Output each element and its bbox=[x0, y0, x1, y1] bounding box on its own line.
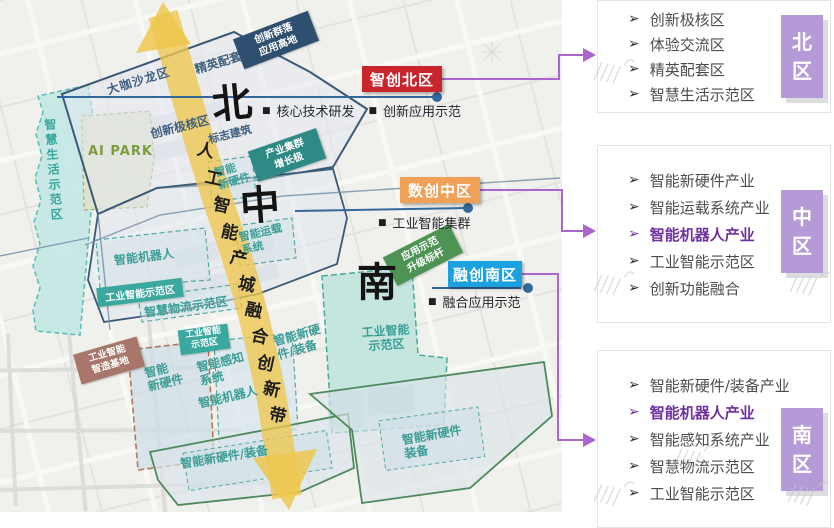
planning-map-infographic: 大咖沙龙区 精英配套区 北 创新极核区 标志建筑 创新群落 应用高地 产业集群 … bbox=[0, 0, 834, 512]
belt-char: 合 bbox=[249, 327, 269, 347]
square-bullet-icon: ■ bbox=[378, 218, 387, 228]
callout-north-district: 智创北区 bbox=[362, 66, 442, 92]
district-char-south: 南 bbox=[357, 263, 397, 303]
square-bullet-icon: ■ bbox=[262, 106, 271, 116]
panel-item-label: 体验交流区 bbox=[650, 34, 725, 55]
belt-char: 城 bbox=[236, 275, 256, 295]
arrow-bullet-icon: ➢ bbox=[628, 36, 640, 52]
zone-label-ai-park: AI PARK bbox=[88, 144, 153, 160]
connector-arrowheads bbox=[583, 48, 596, 447]
district-char-north: 北 bbox=[210, 82, 254, 126]
point-item: ■ 核心技术研发 bbox=[262, 101, 355, 120]
badge-south-district: 南区 bbox=[781, 408, 823, 491]
arrow-bullet-icon: ➢ bbox=[628, 226, 640, 242]
belt-char: 带 bbox=[267, 406, 287, 426]
arrow-bullet-icon: ➢ bbox=[628, 199, 640, 215]
district-char-central: 中 bbox=[239, 185, 282, 228]
panel-item-label: 智能运载系统产业 bbox=[650, 197, 770, 218]
callout-south-district: 融创南区 bbox=[448, 261, 522, 287]
belt-char: 智 bbox=[211, 196, 231, 216]
panel-item-label: 创新功能融合 bbox=[650, 278, 740, 299]
panel-item-label: 智能机器人产业 bbox=[650, 402, 755, 423]
belt-char: 能 bbox=[219, 223, 239, 243]
square-bullet-icon: ■ bbox=[369, 106, 378, 116]
arrow-bullet-icon: ➢ bbox=[628, 485, 640, 501]
callout-south-points: ■ 融合应用示范 bbox=[428, 292, 521, 311]
panel-item-label: 智慧物流示范区 bbox=[650, 456, 755, 477]
panel-item-label: 智能机器人产业 bbox=[650, 224, 755, 245]
belt-char: 融 bbox=[243, 301, 263, 321]
badge-label: 中区 bbox=[790, 203, 814, 261]
point-label: 核心技术研发 bbox=[277, 101, 355, 120]
belt-char: 新 bbox=[261, 380, 281, 400]
point-label: 创新应用示范 bbox=[383, 101, 461, 120]
panel-item-label: 工业智能示范区 bbox=[650, 483, 755, 504]
square-bullet-icon: ■ bbox=[428, 297, 437, 307]
arrow-bullet-icon: ➢ bbox=[628, 253, 640, 269]
point-label: 融合应用示范 bbox=[443, 292, 521, 311]
panel-item: ➢ 智能新硬件/装备产业 bbox=[598, 372, 830, 399]
zone-label-industrial-demo-south: 工业智能 示范区 bbox=[361, 322, 411, 354]
badge-north-district: 北区 bbox=[781, 15, 823, 98]
badge-label: 南区 bbox=[790, 421, 814, 479]
point-label: 工业智能集群 bbox=[393, 213, 471, 232]
asterisk-mark bbox=[482, 42, 502, 62]
badge-central-district: 中区 bbox=[781, 190, 823, 273]
arrow-bullet-icon: ➢ bbox=[628, 86, 640, 102]
arrow-bullet-icon: ➢ bbox=[628, 458, 640, 474]
panel-item: ➢ 创新功能融合 bbox=[598, 275, 830, 302]
arrow-bullet-icon: ➢ bbox=[628, 404, 640, 420]
belt-char: 产 bbox=[228, 249, 248, 269]
panel-item-label: 精英配套区 bbox=[650, 59, 725, 80]
arrow-bullet-icon: ➢ bbox=[628, 431, 640, 447]
arrow-bullet-icon: ➢ bbox=[628, 280, 640, 296]
panel-item-label: 智能新硬件产业 bbox=[650, 170, 755, 191]
panel-item-label: 工业智能示范区 bbox=[650, 251, 755, 272]
panel-item-label: 智能新硬件/装备产业 bbox=[650, 375, 790, 396]
panel-item-label: 智慧生活示范区 bbox=[650, 84, 755, 105]
point-item: ■ 融合应用示范 bbox=[428, 292, 521, 311]
arrow-bullet-icon: ➢ bbox=[628, 377, 640, 393]
callout-north-points: ■ 核心技术研发 ■ 创新应用示范 bbox=[262, 101, 461, 120]
point-item: ■ 工业智能集群 bbox=[378, 213, 471, 232]
arrow-bullet-icon: ➢ bbox=[628, 172, 640, 188]
badge-label: 北区 bbox=[790, 28, 814, 86]
panel-item-label: 创新极核区 bbox=[650, 9, 725, 30]
belt-char: 工 bbox=[203, 169, 223, 189]
panel-item-label: 智能感知系统产业 bbox=[650, 429, 770, 450]
belt-char: 人 bbox=[195, 141, 215, 161]
arrow-bullet-icon: ➢ bbox=[628, 61, 640, 77]
point-item: ■ 创新应用示范 bbox=[369, 101, 462, 120]
callout-central-points: ■ 工业智能集群 bbox=[378, 213, 471, 232]
arrow-bullet-icon: ➢ bbox=[628, 11, 640, 27]
belt-char: 创 bbox=[255, 354, 275, 374]
callout-central-district: 数创中区 bbox=[400, 177, 480, 203]
